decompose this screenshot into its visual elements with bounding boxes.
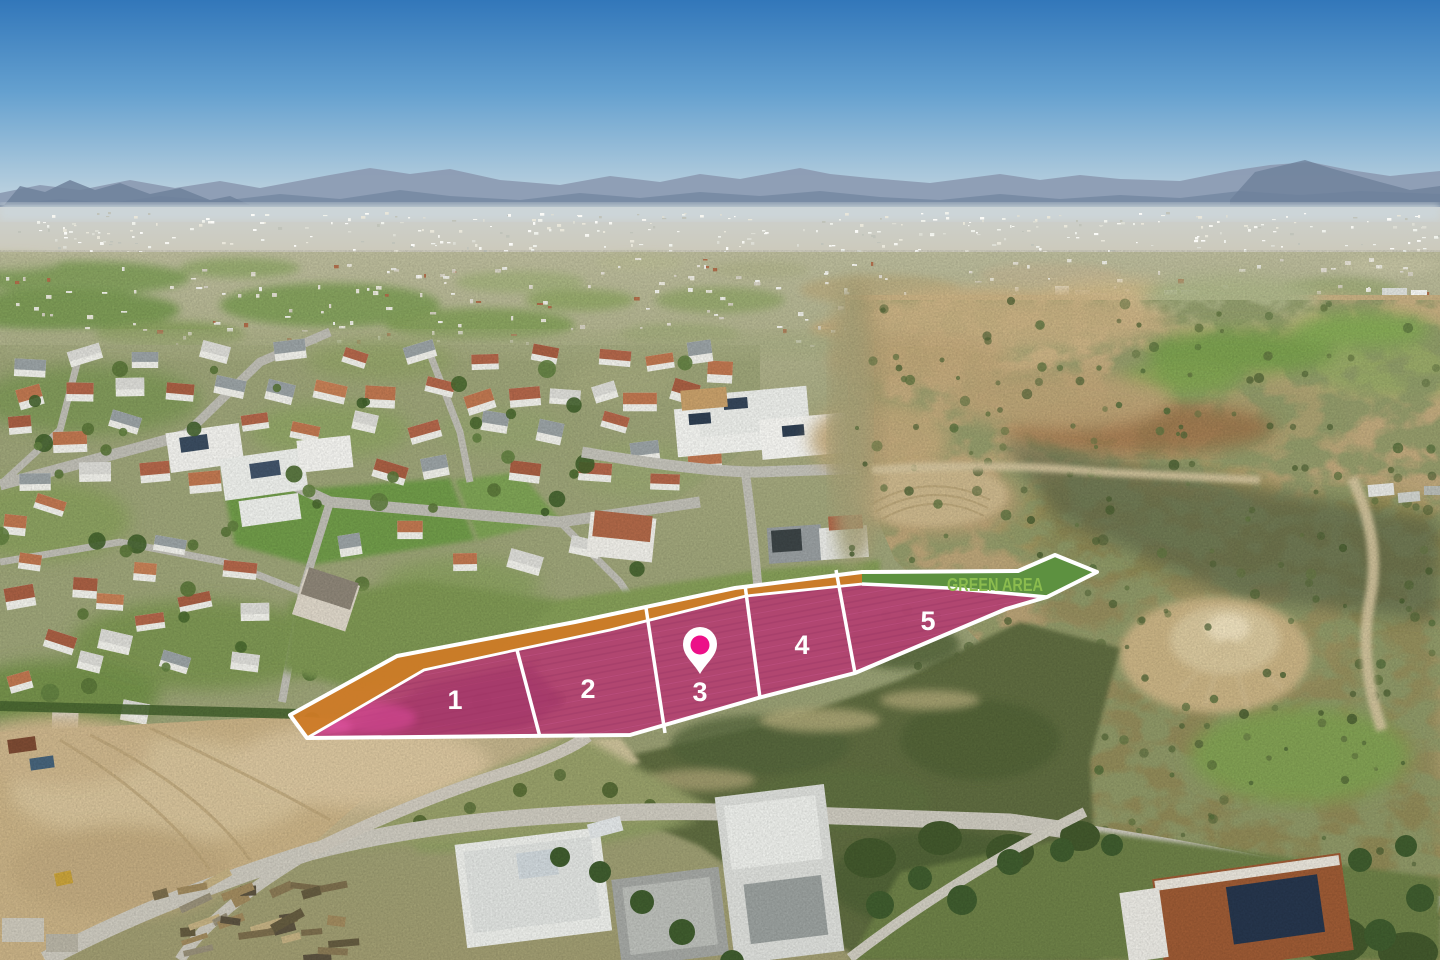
- svg-text:2: 2: [580, 674, 595, 704]
- svg-text:5: 5: [920, 606, 935, 636]
- svg-text:GREEN AREA: GREEN AREA: [947, 574, 1043, 595]
- svg-text:3: 3: [692, 677, 707, 707]
- svg-text:4: 4: [794, 630, 809, 660]
- svg-text:1: 1: [447, 685, 462, 715]
